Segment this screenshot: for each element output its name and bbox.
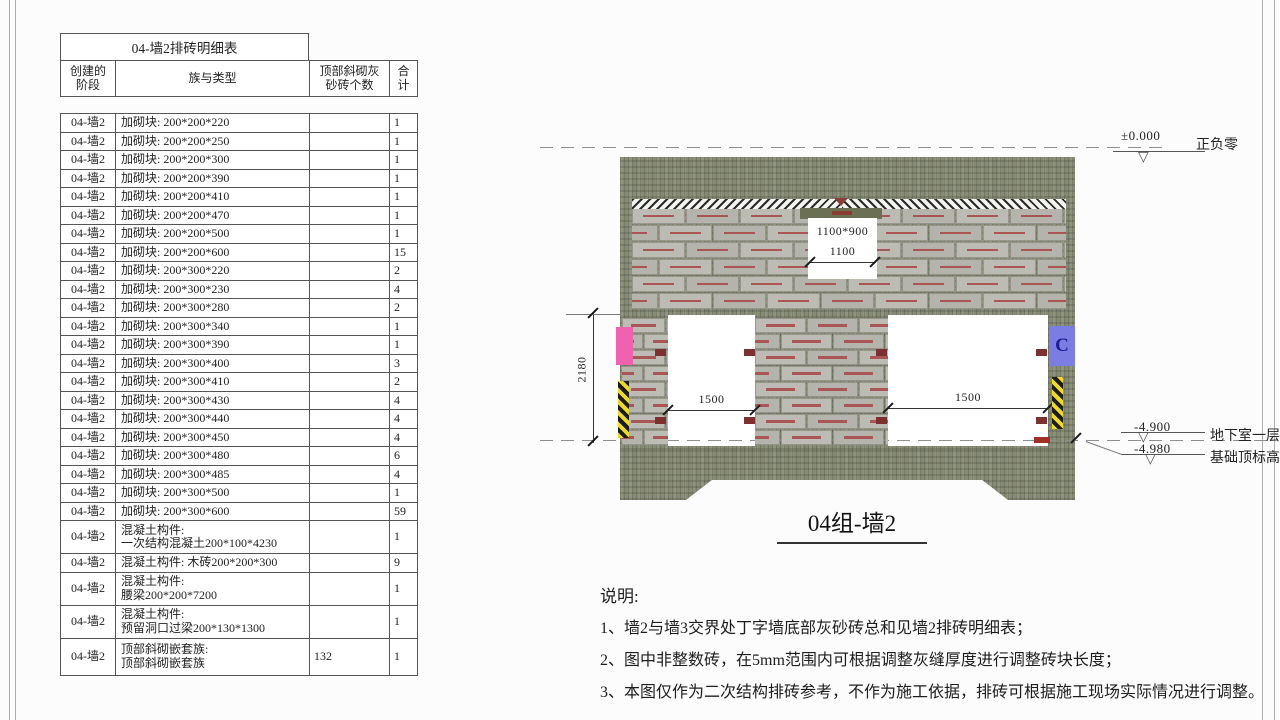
brick bbox=[666, 350, 668, 365]
brick bbox=[666, 318, 668, 333]
level-top-label: 正负零 bbox=[1196, 134, 1238, 154]
brick-size-mark bbox=[653, 340, 668, 343]
brick-size-mark bbox=[818, 356, 848, 359]
brick bbox=[833, 430, 884, 445]
brick bbox=[983, 293, 1036, 309]
brick-size-mark bbox=[805, 283, 836, 286]
brick bbox=[632, 259, 658, 275]
brick-size-mark bbox=[755, 340, 769, 343]
note-item-1: 1、墙2与墙3交界处丁字墙底部灰砂砖总和见墙2排砖明细表； bbox=[600, 614, 1032, 638]
level-triangle-icon: ▽ bbox=[1138, 150, 1149, 164]
drawing-title: 04组-墙2 bbox=[777, 504, 927, 544]
brick bbox=[632, 276, 685, 292]
brick bbox=[686, 242, 739, 258]
brick bbox=[686, 208, 739, 224]
brick-size-mark bbox=[643, 215, 674, 218]
brick-size-mark bbox=[886, 232, 917, 235]
level-line bbox=[1121, 432, 1205, 433]
right-opening-width-dim: 1500 bbox=[886, 390, 1050, 405]
brick bbox=[875, 225, 928, 241]
brick bbox=[821, 293, 874, 309]
brick-size-mark bbox=[844, 340, 874, 343]
door-opening-left bbox=[668, 315, 755, 446]
brick bbox=[1064, 242, 1066, 258]
upper-opening-width-dim: 1100 bbox=[806, 244, 879, 259]
brick bbox=[632, 225, 658, 241]
brick bbox=[983, 225, 1036, 241]
note-item-3: 3、本图仅作为二次结构排砖参考，不作为施工依据，排砖可根据施工现场实际情况进行调… bbox=[600, 678, 1264, 702]
level-connector-line bbox=[1086, 441, 1122, 455]
brick-size-mark bbox=[1021, 215, 1052, 218]
brick bbox=[622, 366, 643, 381]
brick-size-mark bbox=[844, 436, 874, 439]
brick bbox=[885, 334, 888, 349]
dim-line-vertical bbox=[593, 315, 594, 443]
brick-size-mark bbox=[844, 372, 874, 375]
hatch-apex-mark bbox=[834, 198, 848, 206]
brick-size-mark bbox=[792, 404, 822, 407]
brick-size-mark bbox=[792, 340, 822, 343]
brick bbox=[859, 382, 888, 397]
brick-size-mark bbox=[870, 356, 888, 359]
brick-size-mark bbox=[913, 249, 944, 252]
level-mid-label: 地下室一层 bbox=[1210, 425, 1280, 445]
hazard-stripe-left bbox=[618, 381, 629, 438]
brick bbox=[659, 225, 712, 241]
brick-size-mark bbox=[766, 420, 796, 423]
upper-opening-size: 1100*900 bbox=[806, 224, 879, 239]
brick bbox=[833, 398, 884, 413]
brick-size-mark bbox=[1048, 300, 1066, 303]
brick bbox=[632, 293, 658, 309]
brick bbox=[781, 366, 832, 381]
brick bbox=[644, 334, 668, 349]
brick bbox=[929, 225, 982, 241]
brick-size-mark bbox=[913, 215, 944, 218]
brick-size-mark bbox=[994, 232, 1025, 235]
brick-size-mark bbox=[1048, 266, 1066, 269]
wall-footing bbox=[620, 450, 1075, 500]
brick bbox=[929, 293, 982, 309]
brick bbox=[902, 276, 955, 292]
door-opening-right bbox=[888, 315, 1048, 446]
brick bbox=[1010, 208, 1063, 224]
brick bbox=[1010, 276, 1063, 292]
brick-size-mark bbox=[994, 300, 1025, 303]
brick bbox=[644, 366, 668, 381]
brick-size-mark bbox=[792, 372, 822, 375]
brick bbox=[885, 430, 888, 445]
level-top-value: ±0.000 bbox=[1121, 128, 1160, 144]
note-item-2: 2、图中非整数砖，在5mm范围内可根据调整灰缝厚度进行调整砖块长度； bbox=[600, 646, 1121, 670]
brick-size-mark bbox=[792, 436, 822, 439]
level-triangle-icon: ▽ bbox=[1145, 452, 1156, 466]
dim-line bbox=[888, 408, 1048, 409]
brick-size-mark bbox=[643, 249, 674, 252]
brick bbox=[659, 259, 712, 275]
brick bbox=[902, 208, 955, 224]
brick-size-mark bbox=[653, 436, 668, 439]
brick bbox=[755, 350, 806, 365]
brick-size-mark bbox=[818, 324, 848, 327]
brick bbox=[956, 242, 1009, 258]
brick-size-mark bbox=[622, 372, 634, 375]
brick bbox=[666, 414, 668, 429]
brick bbox=[956, 276, 1009, 292]
brick-size-mark bbox=[967, 283, 998, 286]
wood-brick bbox=[1036, 417, 1047, 424]
brick bbox=[781, 398, 832, 413]
brick bbox=[875, 259, 928, 275]
wood-brick bbox=[655, 349, 666, 356]
left-opening-width-dim: 1500 bbox=[666, 392, 757, 407]
pink-block bbox=[616, 327, 633, 365]
brick-size-mark bbox=[818, 420, 848, 423]
wood-brick bbox=[744, 349, 755, 356]
brick bbox=[740, 208, 793, 224]
level-low-label: 基础顶标高 bbox=[1210, 447, 1280, 467]
brick bbox=[644, 430, 668, 445]
brick-size-mark bbox=[724, 300, 755, 303]
brick-size-mark bbox=[631, 420, 656, 423]
brick-size-mark bbox=[940, 232, 971, 235]
wood-brick bbox=[876, 349, 887, 356]
brick-size-mark bbox=[670, 300, 701, 303]
brick bbox=[781, 334, 832, 349]
brick-size-mark bbox=[859, 283, 890, 286]
brick bbox=[1037, 293, 1066, 309]
brick-pier-middle bbox=[755, 318, 888, 446]
brick-size-mark bbox=[751, 283, 782, 286]
brick-size-mark bbox=[778, 232, 809, 235]
brick bbox=[1010, 242, 1063, 258]
brick bbox=[740, 242, 793, 258]
brick-size-mark bbox=[967, 249, 998, 252]
brick bbox=[1064, 208, 1066, 224]
brick bbox=[1037, 225, 1066, 241]
brick bbox=[983, 259, 1036, 275]
window-marker-c: C bbox=[1049, 326, 1075, 366]
brick bbox=[755, 382, 806, 397]
brick bbox=[807, 350, 858, 365]
brick-size-mark bbox=[870, 324, 888, 327]
brick bbox=[632, 242, 685, 258]
wall-height-dim: 2180 bbox=[575, 348, 590, 392]
dim-line bbox=[668, 410, 755, 411]
brick-size-mark bbox=[886, 266, 917, 269]
brick-size-mark bbox=[724, 266, 755, 269]
brick-size-mark bbox=[632, 232, 647, 235]
brick-size-mark bbox=[755, 436, 769, 439]
brick bbox=[755, 430, 780, 445]
brick bbox=[713, 225, 766, 241]
brick bbox=[632, 208, 685, 224]
brick-size-mark bbox=[1021, 283, 1052, 286]
brick-size-mark bbox=[653, 372, 668, 375]
brick-size-mark bbox=[670, 266, 701, 269]
wood-brick bbox=[655, 417, 666, 424]
brick-size-mark bbox=[632, 300, 647, 303]
brick bbox=[902, 242, 955, 258]
brick bbox=[1064, 276, 1066, 292]
brick-size-mark bbox=[1048, 232, 1066, 235]
brick bbox=[713, 259, 766, 275]
brick-size-mark bbox=[632, 266, 647, 269]
brick bbox=[1037, 259, 1066, 275]
brick-size-mark bbox=[643, 283, 674, 286]
wall-elevation-drawing: ▽ ±0.000 正负零 1100*900 1100 1500 1500 218… bbox=[0, 0, 1280, 720]
brick bbox=[859, 318, 888, 333]
brick-size-mark bbox=[751, 215, 782, 218]
notes-heading: 说明: bbox=[600, 582, 639, 607]
dim-line bbox=[810, 262, 876, 263]
wood-brick bbox=[1036, 349, 1047, 356]
brick-size-mark bbox=[697, 249, 728, 252]
brick-size-mark bbox=[751, 249, 782, 252]
brick-size-mark bbox=[844, 404, 874, 407]
brick bbox=[781, 430, 832, 445]
wood-brick bbox=[876, 417, 887, 424]
brick bbox=[686, 276, 739, 292]
brick-size-mark bbox=[913, 283, 944, 286]
brick-size-mark bbox=[631, 324, 656, 327]
brick-size-mark bbox=[766, 388, 796, 391]
brick-size-mark bbox=[697, 283, 728, 286]
brick-size-mark bbox=[940, 266, 971, 269]
brick bbox=[956, 208, 1009, 224]
brick bbox=[755, 334, 780, 349]
brick-size-mark bbox=[697, 215, 728, 218]
brick bbox=[713, 293, 766, 309]
brick-size-mark bbox=[766, 356, 796, 359]
brick bbox=[833, 366, 884, 381]
wood-brick bbox=[744, 417, 755, 424]
brick-size-mark bbox=[1021, 249, 1052, 252]
brick bbox=[807, 318, 858, 333]
brick bbox=[833, 334, 884, 349]
brick-size-mark bbox=[967, 215, 998, 218]
brick bbox=[875, 293, 928, 309]
brick bbox=[740, 276, 793, 292]
brick-size-mark bbox=[818, 388, 848, 391]
brick-size-mark bbox=[631, 356, 656, 359]
brick bbox=[929, 259, 982, 275]
top-datum-line bbox=[540, 147, 1162, 148]
drawing-sheet: { "colors":{"wall_texture":"#878b76","br… bbox=[0, 0, 1280, 720]
brick-size-mark bbox=[940, 300, 971, 303]
brick bbox=[659, 293, 712, 309]
brick bbox=[885, 366, 888, 381]
level-line bbox=[1113, 151, 1205, 152]
red-mark bbox=[1034, 437, 1050, 443]
brick bbox=[755, 366, 780, 381]
brick bbox=[755, 414, 806, 429]
hazard-stripe-right bbox=[1052, 377, 1063, 429]
brick-size-mark bbox=[631, 388, 656, 391]
brick bbox=[755, 318, 806, 333]
brick-size-mark bbox=[832, 300, 863, 303]
brick-size-mark bbox=[778, 300, 809, 303]
level-line bbox=[1121, 454, 1205, 455]
brick-size-mark bbox=[886, 300, 917, 303]
brick-size-mark bbox=[766, 324, 796, 327]
brick bbox=[807, 414, 858, 429]
brick-size-mark bbox=[670, 232, 701, 235]
lintel-mark bbox=[832, 211, 852, 215]
brick bbox=[807, 382, 858, 397]
brick-size-mark bbox=[994, 266, 1025, 269]
brick-size-mark bbox=[724, 232, 755, 235]
brick bbox=[767, 293, 820, 309]
brick-size-mark bbox=[755, 372, 769, 375]
